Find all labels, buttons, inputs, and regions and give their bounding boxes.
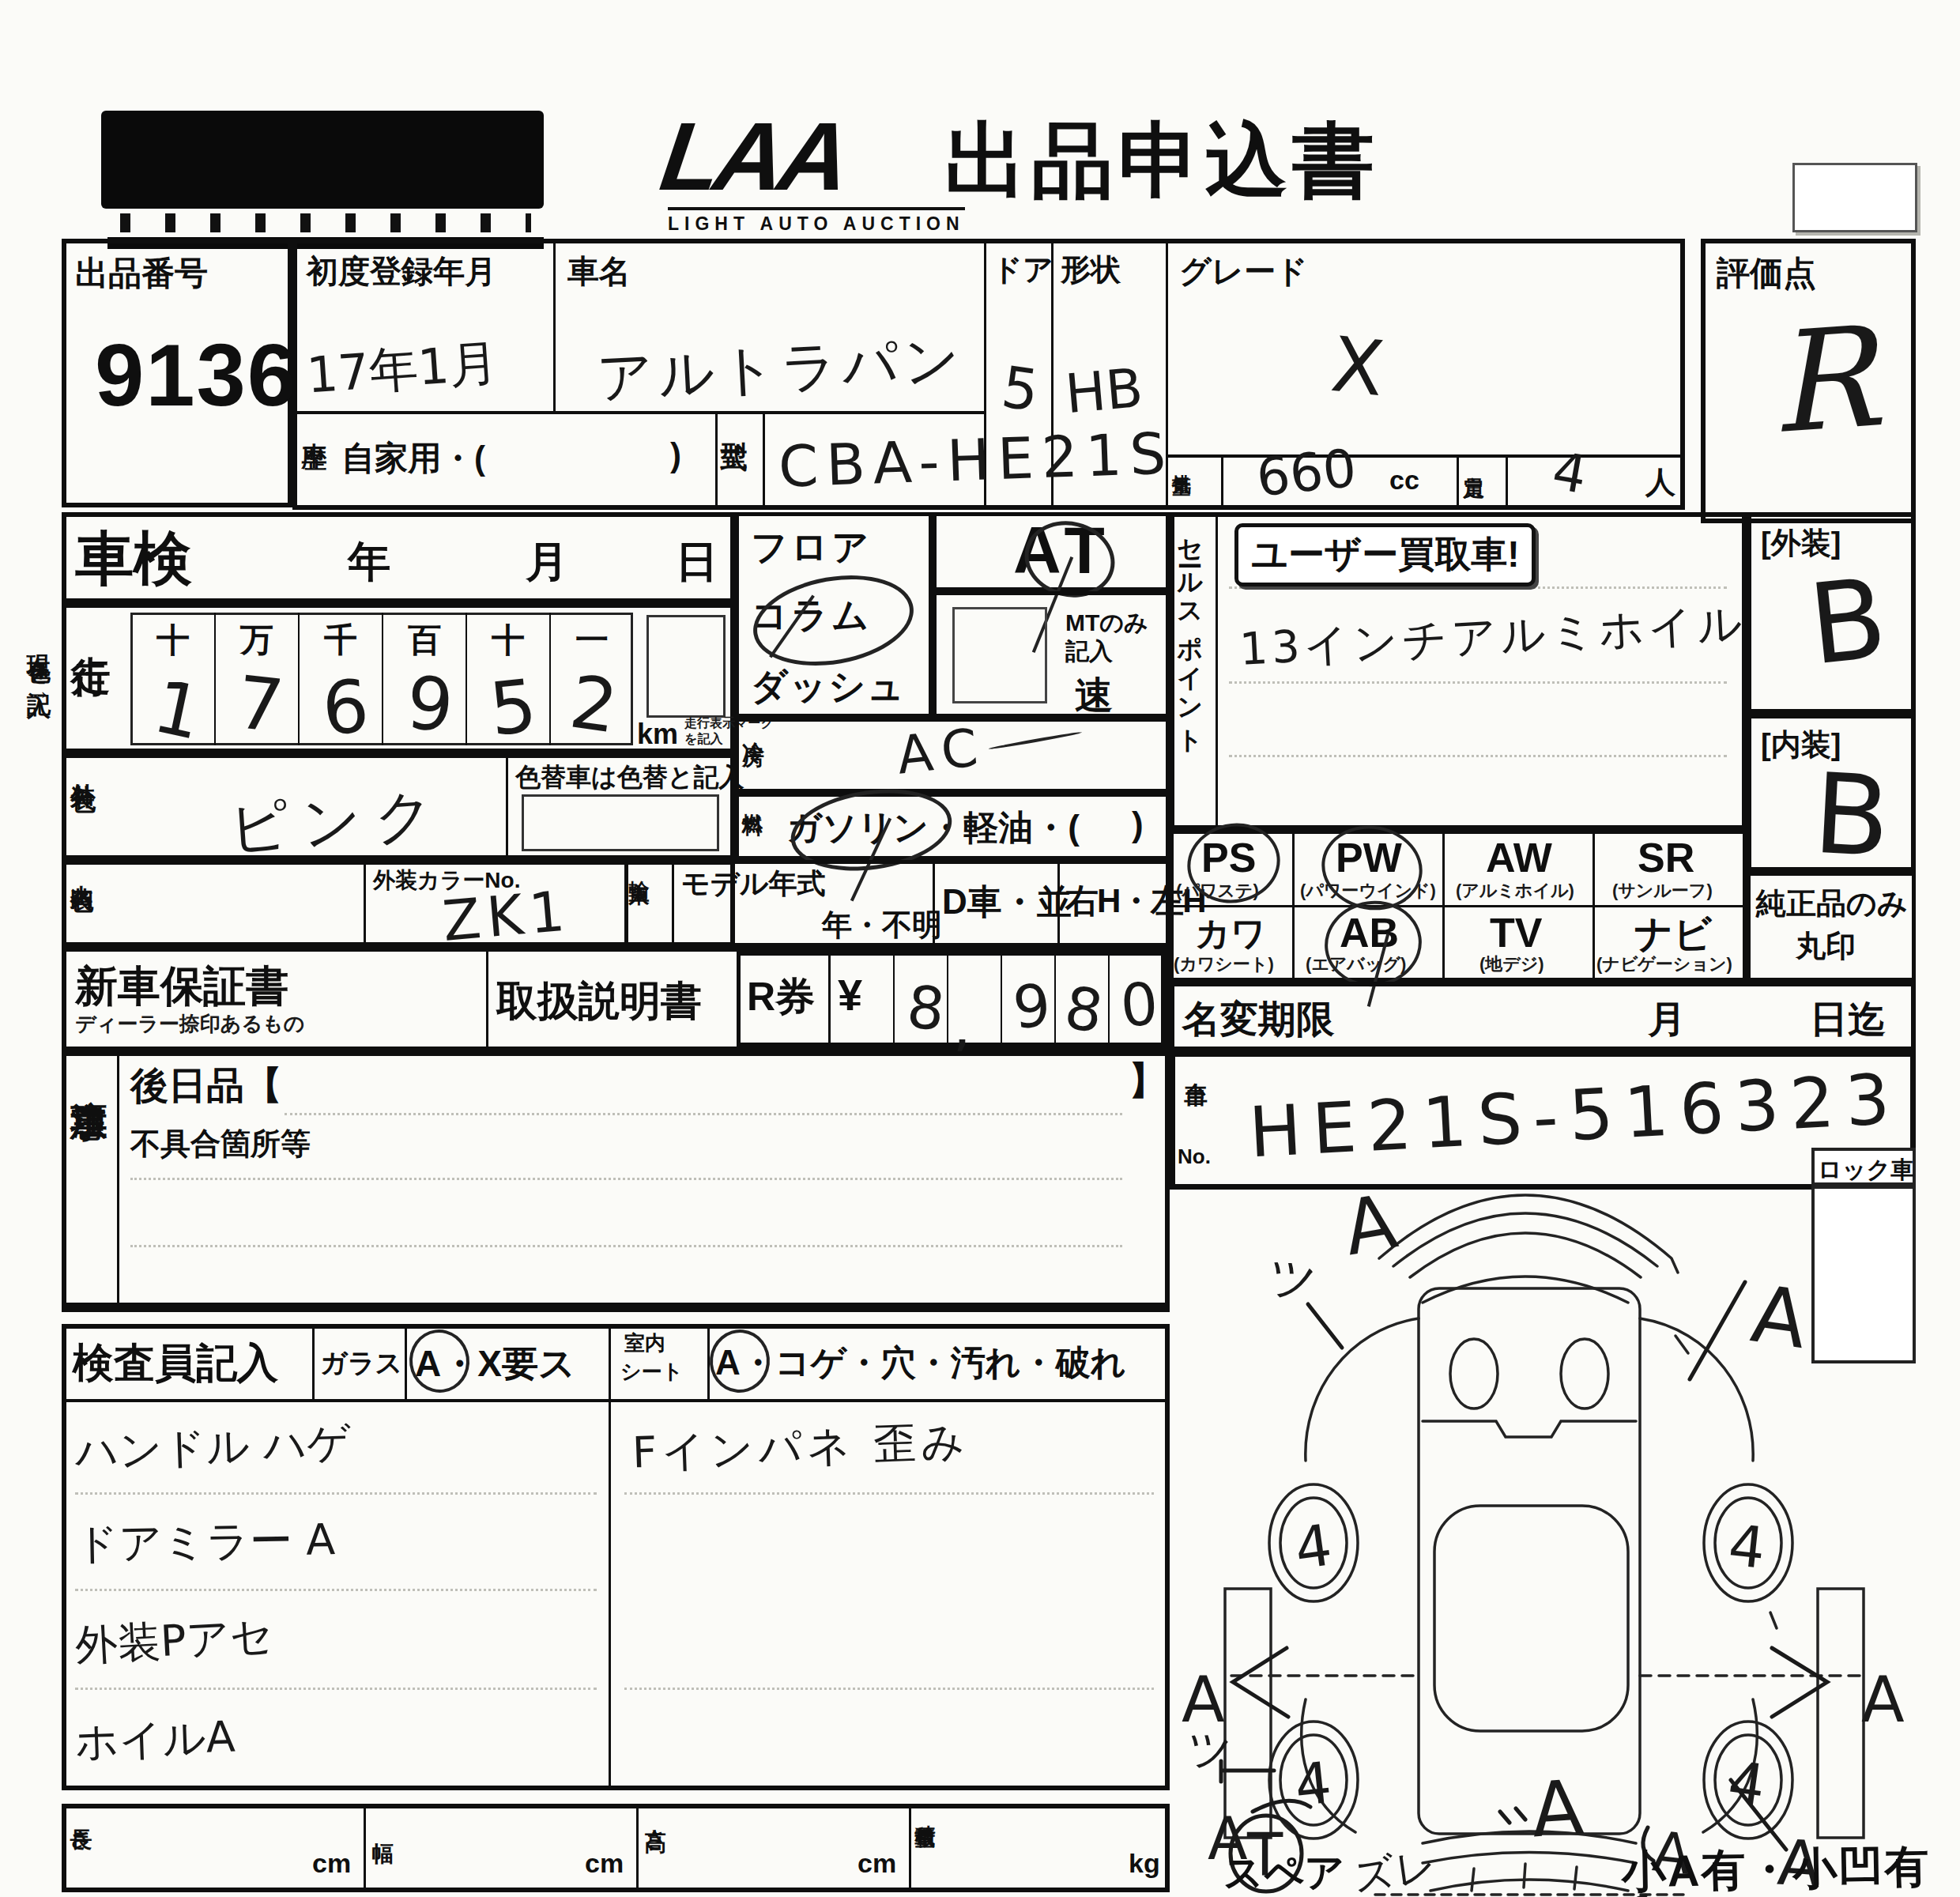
namechange-label: 名変期限 [1182, 994, 1334, 1045]
mileage-mark-box [646, 615, 726, 718]
shaken-label: 車検 [75, 520, 192, 599]
int-color-label: 内装色 [70, 866, 95, 873]
mark-mid-right-a: A [1861, 1663, 1905, 1737]
shape-label: 形状 [1061, 250, 1121, 290]
shape-value: HB [1063, 356, 1145, 425]
mileage-digit-2: 6 [319, 664, 371, 752]
redacted-barcode [101, 111, 544, 209]
history-value: 自家用・( [341, 436, 485, 481]
length-label: 長さ [70, 1812, 92, 1842]
current-color-note: 現在色を記入→ [27, 636, 51, 706]
mt-note1: MTのみ [1065, 607, 1148, 639]
height-unit: cm [857, 1848, 896, 1879]
import-label: 輸入車 [629, 864, 650, 871]
repaint-note: 色替車は色替と記入 [515, 760, 744, 795]
warranty-sub: ディーラー捺印あるもの [75, 1010, 304, 1038]
mark-front-left-scrape: ツ [1262, 1246, 1323, 1312]
modelyear-opts: 年・不明 [822, 905, 942, 945]
mileage-col-2: 千 [324, 618, 357, 662]
rticket-yen: ¥ [838, 969, 862, 1020]
seat-label-2: シート [620, 1358, 683, 1386]
namechange-month: 月 [1648, 994, 1686, 1045]
mileage-digit-3: 9 [403, 661, 457, 749]
page-title: 出品申込書 [944, 107, 1379, 217]
wheel-mark-fr: 4 [1725, 1512, 1768, 1582]
mileage-digit-4: 5 [486, 663, 541, 752]
mark-bumper-zure: ズレ [1350, 1841, 1440, 1897]
small-damage-note: 小A有・小凹有 [1621, 1838, 1931, 1897]
shift-floor: フロア [751, 523, 872, 572]
price-digit-4: 0 [1118, 969, 1160, 1039]
salespoint-label: セールスポイント [1178, 522, 1203, 742]
history-label: 車歴 [302, 423, 327, 428]
opt-sr-sub: (サンルーフ) [1612, 879, 1713, 903]
disp-unit: cc [1389, 465, 1419, 496]
price-digit-2: 9 [1010, 971, 1053, 1042]
width-unit: cm [585, 1848, 624, 1879]
int-rating-value: B [1811, 749, 1893, 882]
load-unit: kg [1129, 1848, 1160, 1879]
header-stamp-box [1792, 163, 1917, 232]
mt-note2: 記入 [1065, 635, 1113, 668]
colorno-value: ZK1 [440, 878, 574, 954]
opt-kawa-sub: (カワシート) [1174, 952, 1274, 976]
inspector-note-1: ドアミラー A [74, 1511, 335, 1574]
seat-label-1: 室内 [624, 1329, 665, 1357]
car-name-label: 車名 [567, 250, 631, 293]
genuine-note-2: 丸印 [1796, 926, 1856, 967]
ext-rating-label: [外装] [1761, 523, 1841, 564]
opt-aw: AW [1486, 834, 1552, 881]
price-digit-1: 8 [904, 972, 948, 1043]
barcode-ticks [120, 213, 531, 232]
mileage-digit-1: 7 [233, 660, 288, 749]
price-comma: , [952, 992, 971, 1060]
opt-sr: SR [1638, 834, 1694, 881]
ext-rating-value: B [1804, 553, 1893, 689]
opt-tv-sub: (地デジ) [1479, 952, 1544, 976]
history-close: ) [670, 436, 681, 474]
wheel-mark-rr: 4 [1724, 1748, 1770, 1820]
mark-rear-window-a: A [1528, 1763, 1586, 1854]
mileage-label: 走行 [71, 624, 111, 629]
seat-options: A・コゲ・穴・汚れ・破れ [715, 1340, 1126, 1386]
disp-label: 排気量 [1172, 458, 1191, 466]
modelyear-label: モデル年式 [681, 865, 826, 903]
car-damage-diagram: A ツ A A A ツ A T A ズレ A A 4 4 4 4 [1178, 1107, 1960, 1897]
model-code-label: 型式 [721, 421, 748, 425]
manual-label: 取扱説明書 [496, 974, 702, 1029]
user-buyback-stamp: ユーザー買取車! [1234, 523, 1536, 586]
wheel-mark-fl: 4 [1291, 1511, 1336, 1582]
notes-defects-label: 不具合箇所等 [130, 1124, 311, 1164]
score-label: 評価点 [1717, 251, 1816, 296]
wheel-mark-rl: 4 [1291, 1749, 1334, 1819]
ext-color-value: ピンク [227, 775, 450, 869]
cap-label: 定員 [1464, 460, 1484, 465]
auction-sheet: LAA LIGHT AUTO AUCTION 出品申込書 出品番号 9136 初… [0, 0, 1960, 1897]
mileage-col-1: 万 [240, 618, 273, 662]
fuel-close: ) [1132, 805, 1144, 844]
opt-kawa: カワ [1195, 911, 1266, 957]
load-label: 積載量 [915, 1808, 936, 1816]
mt-speed-suffix: 速 [1075, 670, 1113, 721]
notes-later-close: 】 [1129, 1056, 1167, 1107]
repaint-box [522, 794, 719, 851]
mileage-unit: km [637, 718, 678, 751]
opt-aw-sub: (アルミホイル) [1456, 879, 1574, 903]
width-label: 幅 [371, 1826, 394, 1828]
height-label: 高さ [644, 1812, 666, 1842]
grade-value: X [1327, 320, 1388, 413]
mileage-col-0: 十 [156, 618, 190, 662]
disp-value: 660 [1253, 438, 1359, 509]
door-label: ドア [992, 250, 1053, 290]
mark-top-a: A [1337, 1178, 1403, 1273]
cool-label: 冷房 [741, 723, 764, 728]
inspector-label: 検査員記入 [73, 1336, 278, 1391]
genuine-note-1: 純正品のみ [1756, 884, 1908, 924]
notes-later-label: 後日品【 [130, 1061, 282, 1111]
mark-front-right-a: A [1746, 1268, 1812, 1367]
shaken-month: 月 [526, 534, 568, 591]
inspector-note-0: ハンドル ハゲ [74, 1414, 352, 1481]
cool-value: AC [894, 716, 990, 786]
shaken-year: 年 [348, 534, 390, 591]
inspector-note-2: 外装Pアセ [73, 1607, 275, 1675]
shift-dash: ダッシュ [751, 662, 906, 711]
opt-navi-sub: (ナビゲーション) [1596, 952, 1732, 976]
length-unit: cm [312, 1848, 351, 1879]
mileage-col-5: 一 [575, 618, 609, 662]
laa-logo-sub: LIGHT AUTO AUCTION [668, 207, 965, 235]
cap-unit: 人 [1645, 462, 1675, 503]
auction-no-label: 出品番号 [75, 251, 208, 296]
inspector-panel-note: Fインパネ 歪み [631, 1413, 971, 1483]
dcar-option: D車・並 [942, 879, 1072, 926]
glass-label: ガラス [320, 1345, 402, 1382]
fuel-label: 燃料 [741, 797, 763, 801]
ext-color-label: 外装色 [70, 763, 96, 770]
spare-label: スペア [1223, 1846, 1345, 1897]
rticket-label: R券 [747, 971, 815, 1024]
auction-no-value: 9136 [95, 324, 298, 426]
shaken-day: 日 [676, 534, 718, 591]
first-reg-label: 初度登録年月 [307, 250, 496, 293]
notes-label: 注意事項 [70, 1071, 110, 1080]
first-reg-value: 17年1月 [304, 330, 500, 409]
opt-tv: TV [1490, 909, 1542, 956]
namechange-until: 日迄 [1810, 994, 1886, 1045]
mileage-unit-note2: を記入 [684, 731, 722, 748]
mileage-col-4: 十 [492, 618, 525, 662]
inspector-note-3: ホイルA [74, 1708, 236, 1771]
model-code-value: CBA-HE21S [778, 420, 1175, 500]
mileage-col-3: 百 [408, 618, 441, 662]
score-value: R [1765, 297, 1880, 465]
mt-speed-box [952, 607, 1047, 703]
warranty-label: 新車保証書 [75, 958, 288, 1016]
grade-label: グレード [1179, 250, 1308, 293]
laa-logo: LAA [654, 101, 851, 212]
